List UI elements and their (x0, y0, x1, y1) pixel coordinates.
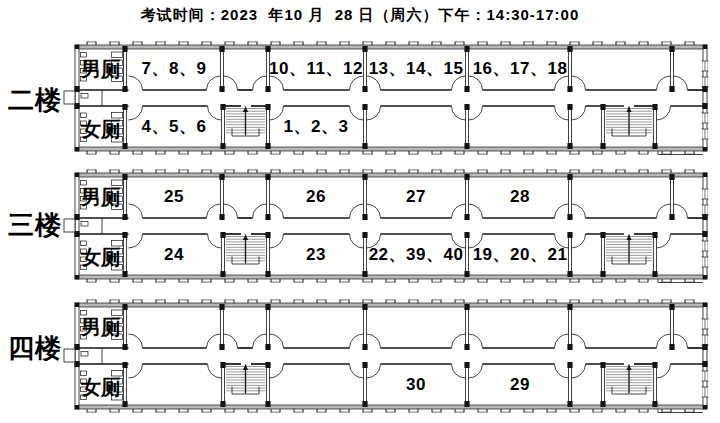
floor-section-3f: 三楼 男厕 女厕 25 26 27 28 24 23 22、39、40 19、2… (0, 168, 720, 284)
room-label: 10、11、12 (261, 57, 371, 81)
room-label: 13、14、15 (361, 57, 471, 81)
room-label: 27 (361, 185, 471, 209)
room-label: 19、20、21 (465, 243, 575, 267)
floor-label: 四楼 (4, 331, 66, 366)
exam-time-title: 考试时间：2023 年10 月 28 日（周六）下午：14:30-17:00 (0, 6, 720, 25)
room-label: 25 (119, 185, 229, 209)
room-label: 30 (361, 373, 471, 397)
page: 考试时间：2023 年10 月 28 日（周六）下午：14:30-17:00 二… (0, 0, 720, 423)
floor-section-4f: 四楼 男厕 女厕 30 29 (0, 298, 720, 414)
floor-label: 三楼 (4, 208, 66, 243)
mens-toilet-label: 男厕 (74, 314, 128, 340)
room-label: 4、5、6 (119, 115, 229, 139)
room-label: 24 (119, 243, 229, 267)
room-label: 7、8、9 (119, 57, 229, 81)
room-label: 28 (465, 185, 575, 209)
womens-toilet-label: 女厕 (74, 374, 128, 400)
room-label: 23 (261, 243, 371, 267)
room-label: 29 (465, 373, 575, 397)
room-label: 22、39、40 (361, 243, 471, 267)
floor-label: 二楼 (4, 83, 66, 118)
floor-section-2f: 二楼 男厕 女厕 7、8、9 10、11、12 13、14、15 16、17、1… (0, 40, 720, 156)
room-label: 26 (261, 185, 371, 209)
room-label: 1、2、3 (261, 115, 371, 139)
room-label: 16、17、18 (465, 57, 575, 81)
